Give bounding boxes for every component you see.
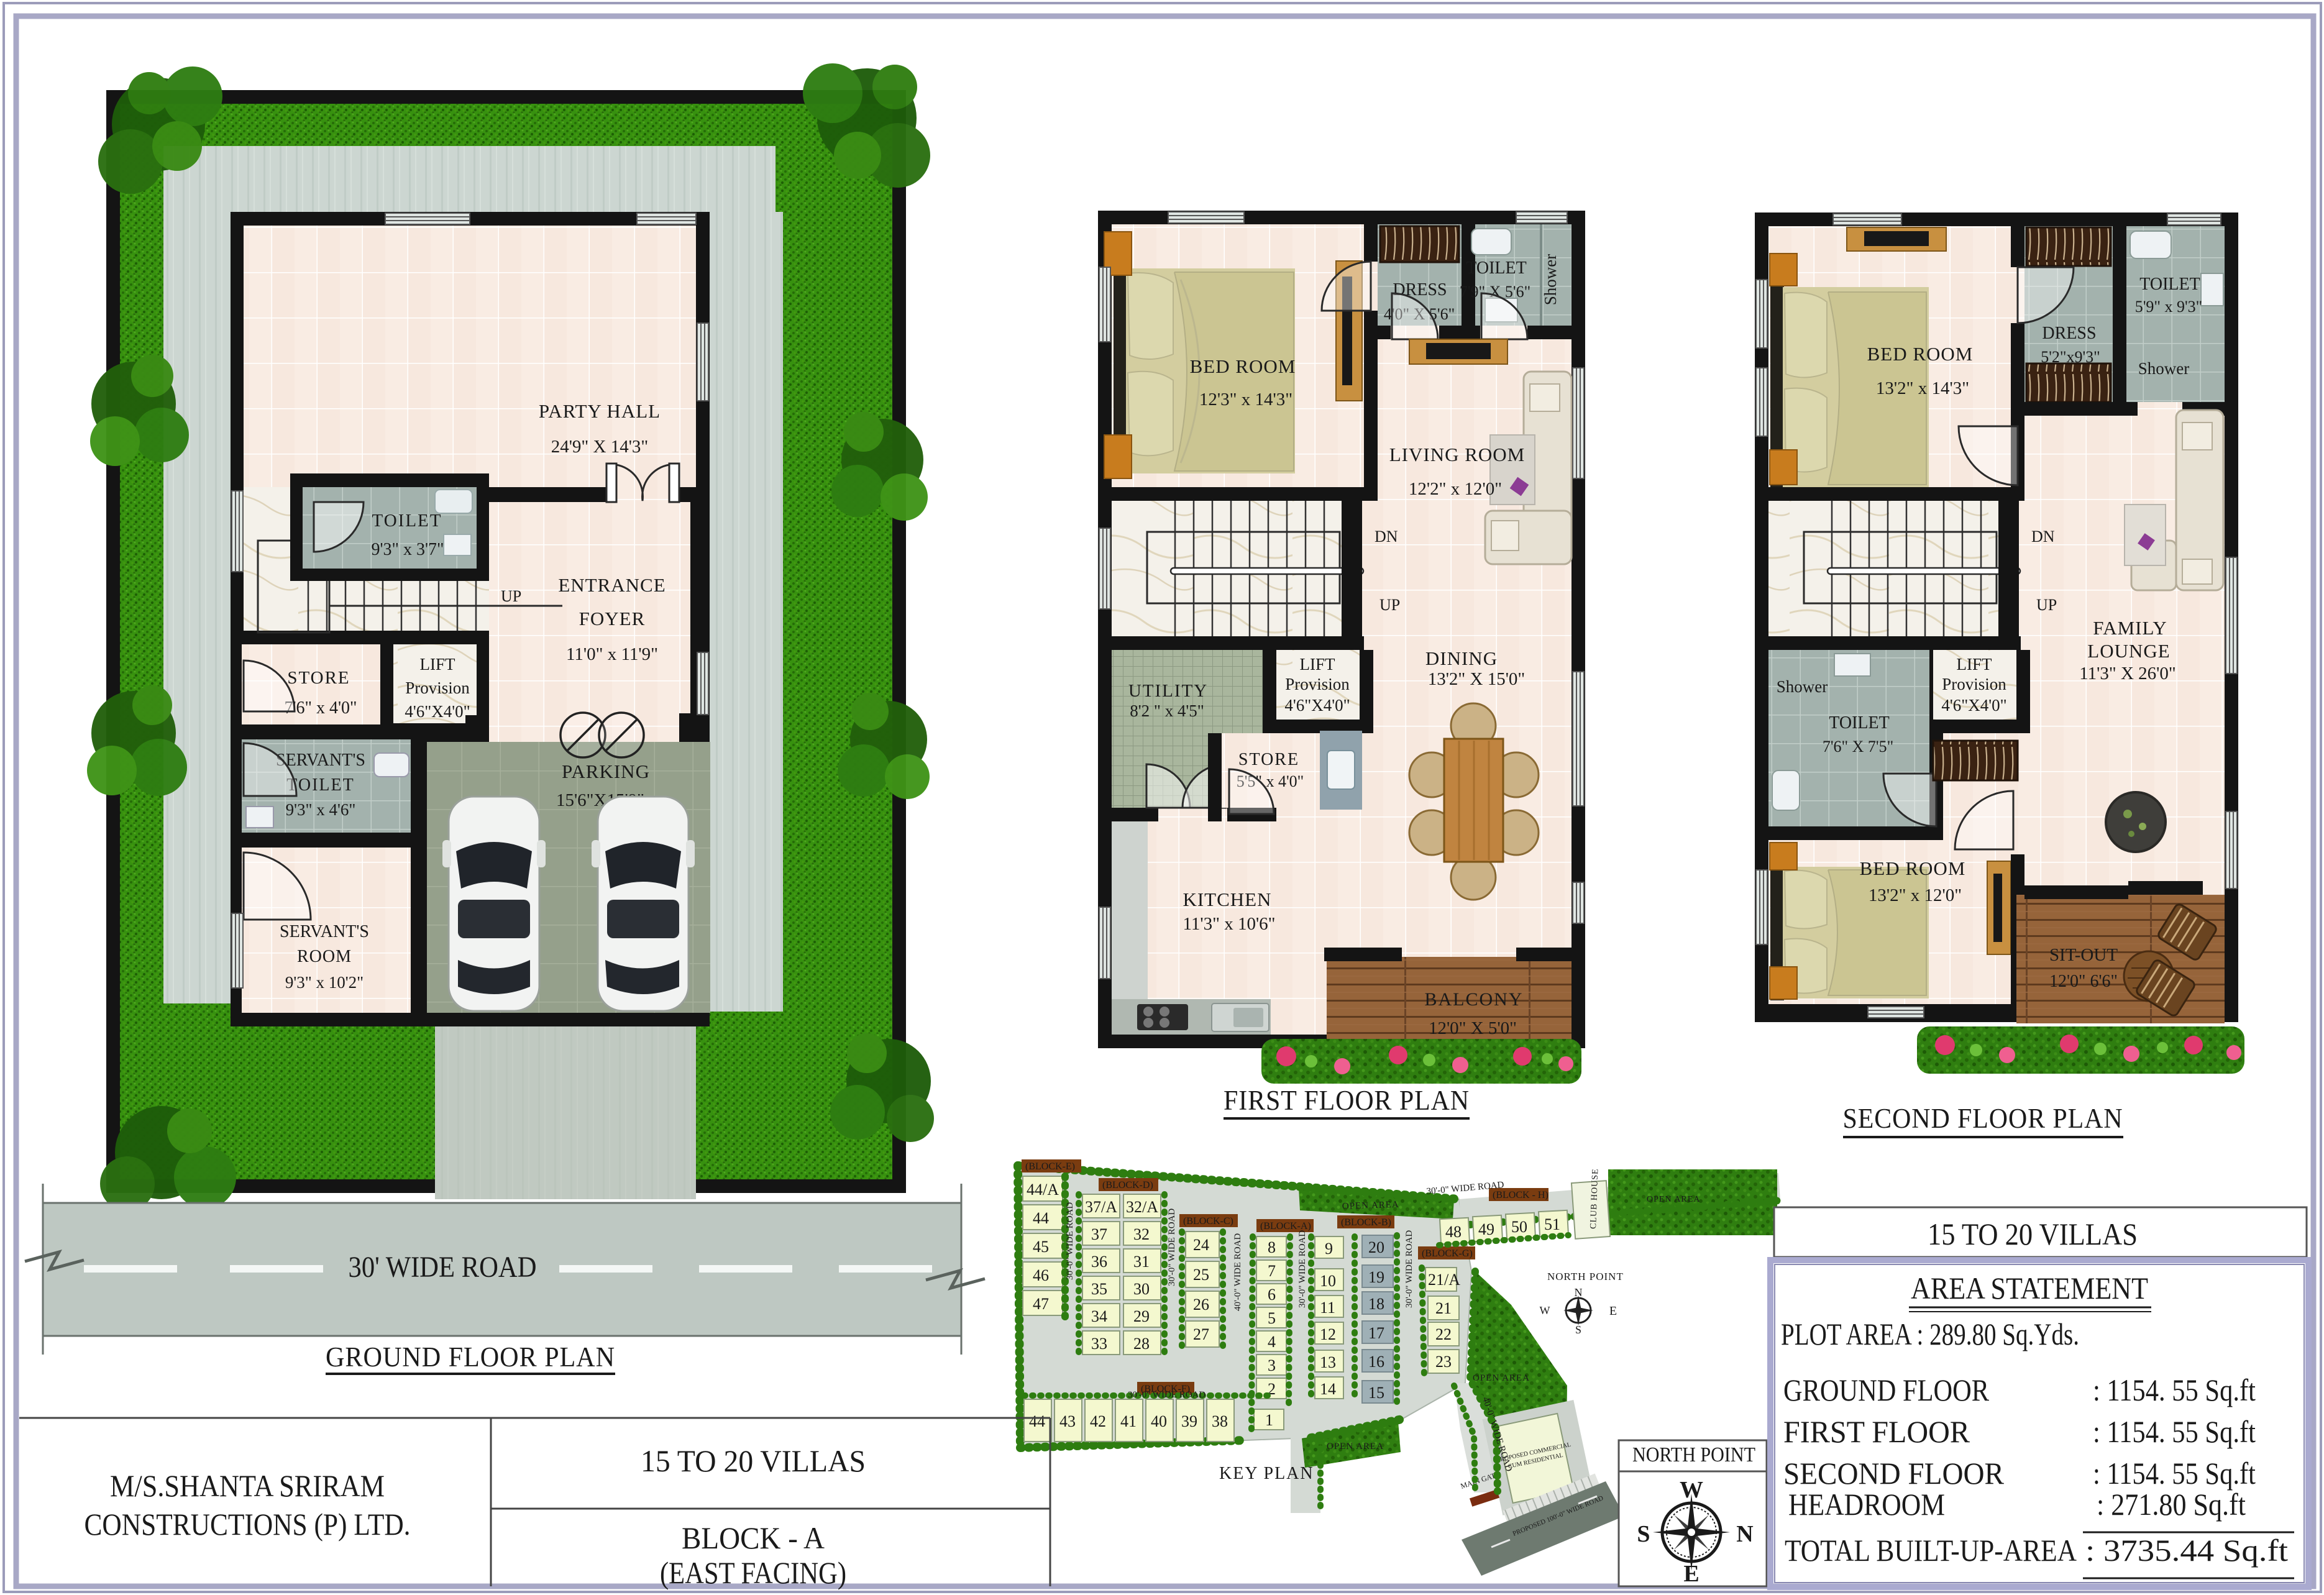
svg-text:DN: DN <box>1375 528 1398 546</box>
svg-text:LOUNGE: LOUNGE <box>2087 640 2170 662</box>
svg-text:8: 8 <box>1268 1238 1276 1256</box>
svg-text:6: 6 <box>1268 1286 1276 1304</box>
svg-text:32/A: 32/A <box>1126 1198 1158 1216</box>
svg-text:38: 38 <box>1212 1412 1228 1430</box>
svg-text:1: 1 <box>1265 1411 1273 1429</box>
svg-text:40'-0" WIDE ROAD: 40'-0" WIDE ROAD <box>1233 1233 1243 1311</box>
svg-text:BALCONY: BALCONY <box>1424 989 1523 1010</box>
svg-text:HEADROOM: HEADROOM <box>1788 1487 1945 1522</box>
svg-text:26: 26 <box>1193 1296 1209 1314</box>
svg-text:: 1154. 55 Sq.ft: : 1154. 55 Sq.ft <box>2093 1414 2256 1449</box>
svg-text:TOILET: TOILET <box>1829 713 1889 733</box>
svg-text:LIFT: LIFT <box>1300 655 1336 674</box>
svg-text:TOILET: TOILET <box>1466 258 1526 278</box>
svg-text:ENTRANCE: ENTRANCE <box>558 574 666 596</box>
svg-text:DINING: DINING <box>1425 647 1498 669</box>
svg-text:NORTH POINT: NORTH POINT <box>1547 1271 1624 1282</box>
svg-text:19: 19 <box>1368 1268 1384 1286</box>
svg-text:15 TO 20 VILLAS: 15 TO 20 VILLAS <box>1928 1217 2138 1251</box>
svg-text:9'3" x 3'7": 9'3" x 3'7" <box>372 540 444 559</box>
svg-text:(BLOCK-E): (BLOCK-E) <box>1025 1161 1075 1172</box>
svg-text:45: 45 <box>1033 1238 1049 1256</box>
svg-text:E: E <box>1609 1304 1617 1318</box>
svg-text:47: 47 <box>1033 1295 1049 1313</box>
svg-text:UP: UP <box>2036 596 2057 614</box>
svg-text:11'3" X 26'0": 11'3" X 26'0" <box>2079 664 2176 683</box>
svg-text:7: 7 <box>1268 1262 1276 1280</box>
svg-text:(EAST FACING): (EAST FACING) <box>660 1555 846 1590</box>
svg-text:BED ROOM: BED ROOM <box>1190 355 1296 377</box>
svg-text:(BLOCK-G): (BLOCK-G) <box>1422 1248 1473 1259</box>
svg-text:30'-0" WIDE ROAD: 30'-0" WIDE ROAD <box>1065 1202 1075 1280</box>
svg-text:NORTH POINT: NORTH POINT <box>1632 1443 1755 1466</box>
svg-text:4'6"X4'0": 4'6"X4'0" <box>1284 696 1350 715</box>
svg-text:30'-0" WIDE ROAD: 30'-0" WIDE ROAD <box>1167 1209 1177 1286</box>
svg-text:8'2 " x 4'5": 8'2 " x 4'5" <box>1130 702 1204 720</box>
svg-text:FOYER: FOYER <box>579 608 646 629</box>
svg-text:UTILITY: UTILITY <box>1128 681 1208 701</box>
svg-text:18: 18 <box>1368 1295 1384 1313</box>
svg-text:(BLOCK-A): (BLOCK-A) <box>1260 1221 1311 1232</box>
svg-text:KITCHEN: KITCHEN <box>1183 889 1271 910</box>
svg-text:11'0" x 11'9": 11'0" x 11'9" <box>566 644 658 664</box>
svg-text:23: 23 <box>1435 1353 1452 1371</box>
svg-text:PLOT AREA : 289.80 Sq.Yds.: PLOT AREA : 289.80 Sq.Yds. <box>1781 1317 2079 1351</box>
svg-text:21/A: 21/A <box>1428 1271 1460 1289</box>
svg-text:37/A: 37/A <box>1085 1198 1117 1216</box>
svg-text:37: 37 <box>1091 1225 1107 1243</box>
svg-text:STORE: STORE <box>287 668 350 688</box>
svg-text:32: 32 <box>1133 1225 1150 1243</box>
svg-text:TOTAL BUILT-UP-AREA: TOTAL BUILT-UP-AREA <box>1785 1533 2077 1568</box>
svg-text:SECOND FLOOR: SECOND FLOOR <box>1783 1456 2005 1491</box>
svg-text:4: 4 <box>1268 1333 1276 1351</box>
svg-text:48: 48 <box>1445 1223 1462 1241</box>
svg-text:9'3" x 4'6": 9'3" x 4'6" <box>286 800 356 819</box>
svg-text:CONSTRUCTIONS (P) LTD.: CONSTRUCTIONS (P) LTD. <box>85 1507 411 1542</box>
svg-text:BED ROOM: BED ROOM <box>1860 857 1966 879</box>
svg-text:21: 21 <box>1435 1299 1452 1317</box>
svg-text:(BLOCK-B): (BLOCK-B) <box>1341 1217 1391 1228</box>
svg-text:9'3" x 10'2": 9'3" x 10'2" <box>285 973 364 992</box>
svg-text:UP: UP <box>501 587 521 605</box>
svg-text:36: 36 <box>1091 1253 1107 1271</box>
svg-text:Shower: Shower <box>1777 677 1828 696</box>
svg-text:44: 44 <box>1033 1209 1049 1227</box>
svg-text:S: S <box>1637 1521 1650 1547</box>
svg-text:20: 20 <box>1368 1238 1384 1256</box>
svg-text:14: 14 <box>1320 1380 1336 1398</box>
svg-text:BED ROOM: BED ROOM <box>1867 343 1974 365</box>
svg-text:43: 43 <box>1059 1412 1076 1430</box>
svg-text:13'2" x 14'3": 13'2" x 14'3" <box>1876 378 1969 398</box>
svg-text:12'0" X 5'0": 12'0" X 5'0" <box>1429 1018 1517 1038</box>
svg-text:5'2"x9'3": 5'2"x9'3" <box>2041 348 2100 366</box>
svg-text:30'-0" WIDE ROAD: 30'-0" WIDE ROAD <box>1404 1230 1414 1308</box>
svg-text:44/A: 44/A <box>1027 1181 1059 1199</box>
svg-text:41: 41 <box>1120 1412 1137 1430</box>
svg-text:SECOND FLOOR PLAN: SECOND FLOOR PLAN <box>1843 1103 2123 1134</box>
svg-text:FAMILY: FAMILY <box>2093 617 2167 639</box>
svg-text:UP: UP <box>1379 596 1400 614</box>
svg-text:30'-0" WIDE ROAD: 30'-0" WIDE ROAD <box>1128 1390 1205 1400</box>
svg-text:GROUND FLOOR PLAN: GROUND FLOOR PLAN <box>326 1341 615 1373</box>
svg-text:51: 51 <box>1544 1215 1560 1233</box>
svg-text:30'-0" WIDE ROAD: 30'-0" WIDE ROAD <box>1297 1230 1307 1308</box>
svg-text:SERVANT'S: SERVANT'S <box>280 922 369 941</box>
svg-text:KEY PLAN: KEY PLAN <box>1219 1464 1314 1483</box>
svg-text:46: 46 <box>1033 1266 1049 1284</box>
svg-text:34: 34 <box>1091 1307 1107 1325</box>
svg-text:PARKING: PARKING <box>562 761 650 782</box>
svg-text:Provision: Provision <box>405 679 470 697</box>
svg-text:24'9" X 14'3": 24'9" X 14'3" <box>551 437 649 457</box>
svg-text:BLOCK - A: BLOCK - A <box>682 1520 825 1555</box>
svg-text:10: 10 <box>1320 1272 1336 1290</box>
svg-text:15 TO 20 VILLAS: 15 TO 20 VILLAS <box>641 1443 866 1478</box>
svg-text:9: 9 <box>1325 1240 1333 1258</box>
svg-text:5'9" x 9'3": 5'9" x 9'3" <box>2135 298 2203 316</box>
svg-text:DN: DN <box>2031 528 2055 546</box>
svg-text:12'2" x 12'0": 12'2" x 12'0" <box>1409 479 1502 499</box>
svg-text:15: 15 <box>1368 1384 1384 1402</box>
svg-text:25: 25 <box>1193 1266 1209 1284</box>
svg-text:30' WIDE ROAD: 30' WIDE ROAD <box>349 1251 537 1284</box>
svg-text:DRESS: DRESS <box>2042 324 2096 343</box>
svg-text:40: 40 <box>1151 1412 1167 1430</box>
svg-text:LIFT: LIFT <box>1957 655 1993 674</box>
svg-text:24: 24 <box>1193 1236 1209 1254</box>
svg-text:11'3" x 10'6": 11'3" x 10'6" <box>1183 914 1275 934</box>
svg-text:7'6" X 7'5": 7'6" X 7'5" <box>1823 738 1893 756</box>
svg-text:13'2" x 12'0": 13'2" x 12'0" <box>1869 885 1962 905</box>
svg-text:50: 50 <box>1511 1218 1527 1236</box>
svg-text:OPEN AREA: OPEN AREA <box>1473 1373 1530 1383</box>
svg-text:16: 16 <box>1368 1353 1384 1371</box>
svg-text:M/S.SHANTA SRIRAM: M/S.SHANTA SRIRAM <box>110 1468 385 1503</box>
svg-text:STORE: STORE <box>1238 750 1299 769</box>
svg-text:(BLOCK-C): (BLOCK-C) <box>1183 1216 1233 1227</box>
svg-text:12: 12 <box>1320 1325 1336 1343</box>
svg-text:29: 29 <box>1133 1307 1150 1325</box>
svg-text:13'2" X 15'0": 13'2" X 15'0" <box>1428 669 1526 689</box>
svg-text:Shower: Shower <box>2138 359 2190 378</box>
svg-text:PARTY HALL: PARTY HALL <box>539 400 661 422</box>
svg-text:27: 27 <box>1193 1325 1209 1343</box>
svg-text:4'6"X4'0": 4'6"X4'0" <box>1941 696 2006 715</box>
svg-text:22: 22 <box>1435 1325 1452 1343</box>
svg-text:OPEN AREA: OPEN AREA <box>1342 1200 1399 1212</box>
svg-text:SERVANT'S: SERVANT'S <box>276 751 365 770</box>
svg-text:39: 39 <box>1181 1412 1197 1430</box>
svg-text:Provision: Provision <box>1285 675 1350 693</box>
svg-text:13: 13 <box>1320 1353 1336 1371</box>
svg-text:33: 33 <box>1091 1335 1107 1353</box>
svg-text:(BLOCK - H): (BLOCK - H) <box>1493 1190 1549 1200</box>
svg-text:FIRST FLOOR: FIRST FLOOR <box>1783 1414 1970 1449</box>
svg-text:11: 11 <box>1320 1299 1335 1317</box>
svg-text:44: 44 <box>1029 1412 1045 1430</box>
svg-text:17: 17 <box>1368 1324 1384 1342</box>
svg-text:(BLOCK-D): (BLOCK-D) <box>1102 1180 1153 1191</box>
svg-text:AREA STATEMENT: AREA STATEMENT <box>1911 1271 2148 1305</box>
svg-text:GROUND FLOOR: GROUND FLOOR <box>1783 1373 1990 1407</box>
svg-text:OPEN AREA: OPEN AREA <box>1327 1442 1384 1451</box>
svg-text:LIVING ROOM: LIVING ROOM <box>1389 444 1526 465</box>
svg-text:Provision: Provision <box>1942 675 2006 693</box>
svg-text:W: W <box>1540 1304 1550 1317</box>
svg-text:N: N <box>1736 1521 1753 1547</box>
svg-text:SIT-OUT: SIT-OUT <box>2049 945 2118 965</box>
svg-text:12'0" 6'6": 12'0" 6'6" <box>2049 972 2118 991</box>
svg-text:OPEN AREA: OPEN AREA <box>1647 1195 1700 1204</box>
svg-text:ROOM: ROOM <box>297 947 352 966</box>
svg-text:35: 35 <box>1091 1280 1107 1298</box>
svg-text:30: 30 <box>1133 1280 1150 1298</box>
svg-text:TOILET: TOILET <box>2139 275 2200 294</box>
svg-text:31: 31 <box>1133 1253 1150 1271</box>
svg-text:49: 49 <box>1478 1220 1494 1238</box>
svg-text:: 271.80 Sq.ft: : 271.80 Sq.ft <box>2097 1487 2246 1522</box>
svg-text:Shower: Shower <box>1541 254 1560 306</box>
svg-text:42: 42 <box>1090 1412 1106 1430</box>
svg-text:TOILET: TOILET <box>372 511 442 531</box>
svg-text:: 1154. 55 Sq.ft: : 1154. 55 Sq.ft <box>2093 1373 2256 1407</box>
svg-text:4'6"X4'0": 4'6"X4'0" <box>405 702 470 721</box>
svg-text:5: 5 <box>1268 1309 1276 1327</box>
svg-text:LIFT: LIFT <box>420 655 456 674</box>
svg-text:FIRST FLOOR PLAN: FIRST FLOOR PLAN <box>1224 1085 1470 1116</box>
svg-text:: 3735.44 Sq.ft: : 3735.44 Sq.ft <box>2085 1533 2288 1568</box>
svg-text:3: 3 <box>1268 1356 1276 1374</box>
svg-text:: 1154. 55 Sq.ft: : 1154. 55 Sq.ft <box>2093 1456 2256 1491</box>
svg-text:28: 28 <box>1133 1335 1150 1353</box>
svg-text:12'3" x 14'3": 12'3" x 14'3" <box>1199 390 1292 409</box>
